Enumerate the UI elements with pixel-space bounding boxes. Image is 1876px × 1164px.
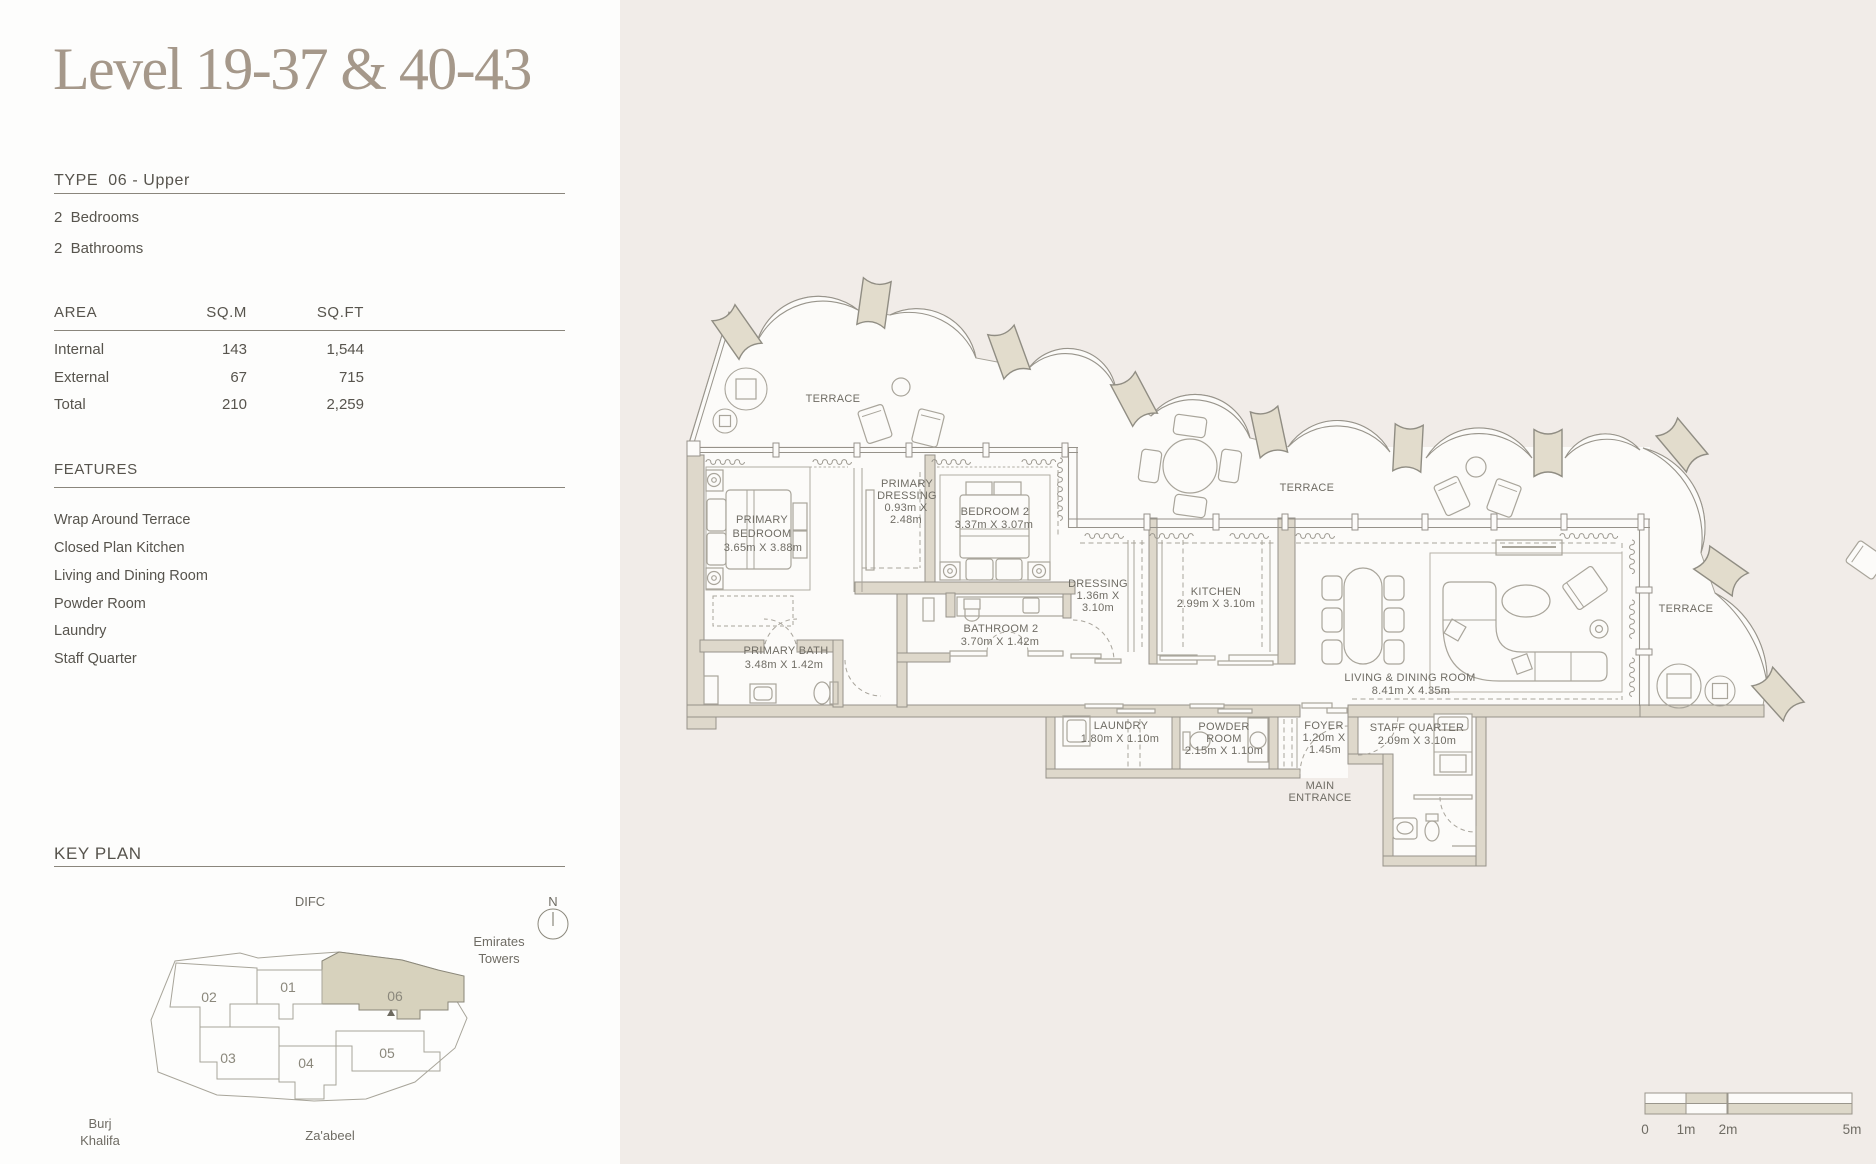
svg-text:BATHROOM 2: BATHROOM 2 xyxy=(964,623,1039,635)
svg-text:FOYER: FOYER xyxy=(1304,720,1343,732)
svg-text:MAIN: MAIN xyxy=(1306,780,1335,792)
svg-text:Burj: Burj xyxy=(88,1116,111,1131)
svg-text:3.48m X 1.42m: 3.48m X 1.42m xyxy=(745,659,824,671)
svg-text:1m: 1m xyxy=(1677,1122,1696,1137)
svg-text:KITCHEN: KITCHEN xyxy=(1191,586,1241,598)
svg-text:3.37m X 3.07m: 3.37m X 3.07m xyxy=(955,519,1034,531)
svg-text:PRIMARY: PRIMARY xyxy=(881,478,933,490)
svg-text:BEDROOM 2: BEDROOM 2 xyxy=(961,506,1030,518)
svg-text:8.41m X 4.35m: 8.41m X 4.35m xyxy=(1372,685,1451,697)
svg-text:Towers: Towers xyxy=(478,951,520,966)
svg-text:2m: 2m xyxy=(1719,1122,1738,1137)
svg-text:3.65m X 3.88m: 3.65m X 3.88m xyxy=(724,542,803,554)
svg-text:N: N xyxy=(548,894,557,909)
svg-text:PRIMARY BATH: PRIMARY BATH xyxy=(744,645,829,657)
svg-text:TERRACE: TERRACE xyxy=(806,393,861,405)
svg-text:DRESSING: DRESSING xyxy=(877,490,937,502)
svg-text:LAUNDRY: LAUNDRY xyxy=(1094,720,1149,732)
svg-text:LIVING & DINING ROOM: LIVING & DINING ROOM xyxy=(1344,672,1475,684)
svg-text:2.15m X 1.10m: 2.15m X 1.10m xyxy=(1185,745,1264,757)
svg-text:2.48m: 2.48m xyxy=(890,514,922,526)
svg-text:06: 06 xyxy=(387,988,403,1004)
svg-text:1.36m X: 1.36m X xyxy=(1076,590,1119,602)
svg-text:1.80m X 1.10m: 1.80m X 1.10m xyxy=(1081,733,1160,745)
svg-text:STAFF QUARTER: STAFF QUARTER xyxy=(1370,722,1465,734)
svg-text:POWDER: POWDER xyxy=(1198,721,1249,733)
svg-text:02: 02 xyxy=(201,989,217,1005)
svg-text:TERRACE: TERRACE xyxy=(1280,482,1335,494)
svg-text:DIFC: DIFC xyxy=(295,894,325,909)
svg-text:Emirates: Emirates xyxy=(473,934,525,949)
svg-text:DRESSING: DRESSING xyxy=(1068,578,1128,590)
svg-text:01: 01 xyxy=(280,979,296,995)
svg-text:1.20m X: 1.20m X xyxy=(1302,732,1345,744)
svg-text:PRIMARY: PRIMARY xyxy=(736,514,788,526)
svg-text:03: 03 xyxy=(220,1050,236,1066)
svg-text:BEDROOM: BEDROOM xyxy=(733,528,792,540)
svg-text:2.99m X 3.10m: 2.99m X 3.10m xyxy=(1177,598,1256,610)
svg-text:ROOM: ROOM xyxy=(1206,733,1241,745)
svg-text:TERRACE: TERRACE xyxy=(1659,603,1714,615)
svg-text:0.93m X: 0.93m X xyxy=(884,502,927,514)
svg-text:3.10m: 3.10m xyxy=(1082,602,1114,614)
svg-text:0: 0 xyxy=(1641,1122,1649,1137)
svg-text:2.09m X 3.10m: 2.09m X 3.10m xyxy=(1378,735,1457,747)
svg-text:04: 04 xyxy=(298,1055,314,1071)
svg-text:ENTRANCE: ENTRANCE xyxy=(1289,792,1352,804)
svg-text:1.45m: 1.45m xyxy=(1309,744,1341,756)
svg-text:5m: 5m xyxy=(1843,1122,1862,1137)
svg-text:Khalifa: Khalifa xyxy=(80,1133,121,1148)
svg-text:05: 05 xyxy=(379,1045,395,1061)
svg-text:3.70m X 1.42m: 3.70m X 1.42m xyxy=(961,636,1040,648)
svg-text:Za'abeel: Za'abeel xyxy=(305,1128,355,1143)
